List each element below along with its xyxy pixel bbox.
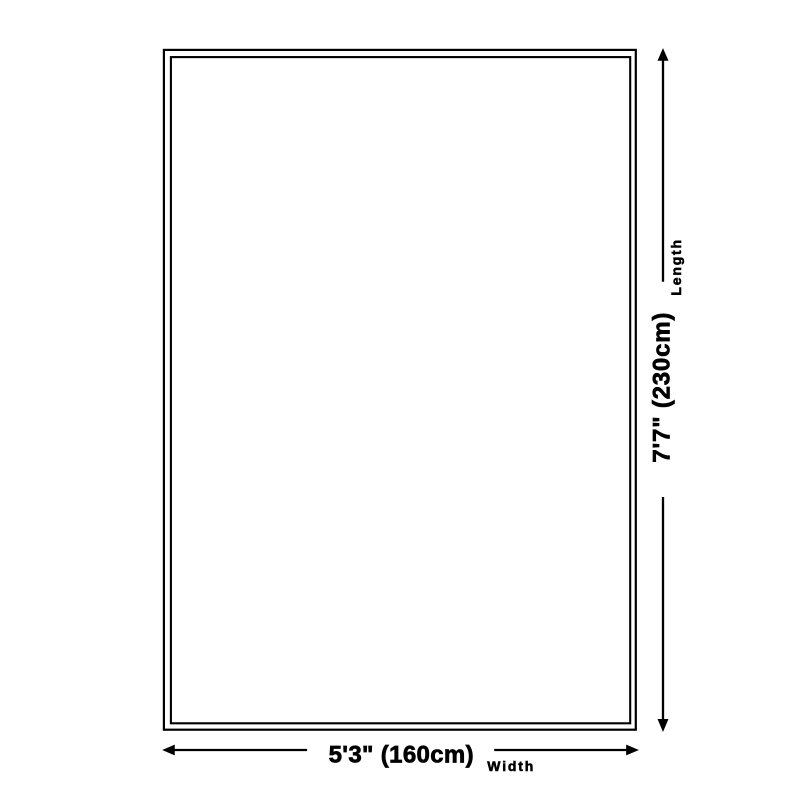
svg-text:Length: Length [668, 238, 684, 295]
svg-text:5'3" (160cm): 5'3" (160cm) [329, 741, 474, 768]
svg-text:Width: Width [487, 758, 535, 774]
svg-text:7'7" (230cm): 7'7" (230cm) [649, 312, 676, 463]
